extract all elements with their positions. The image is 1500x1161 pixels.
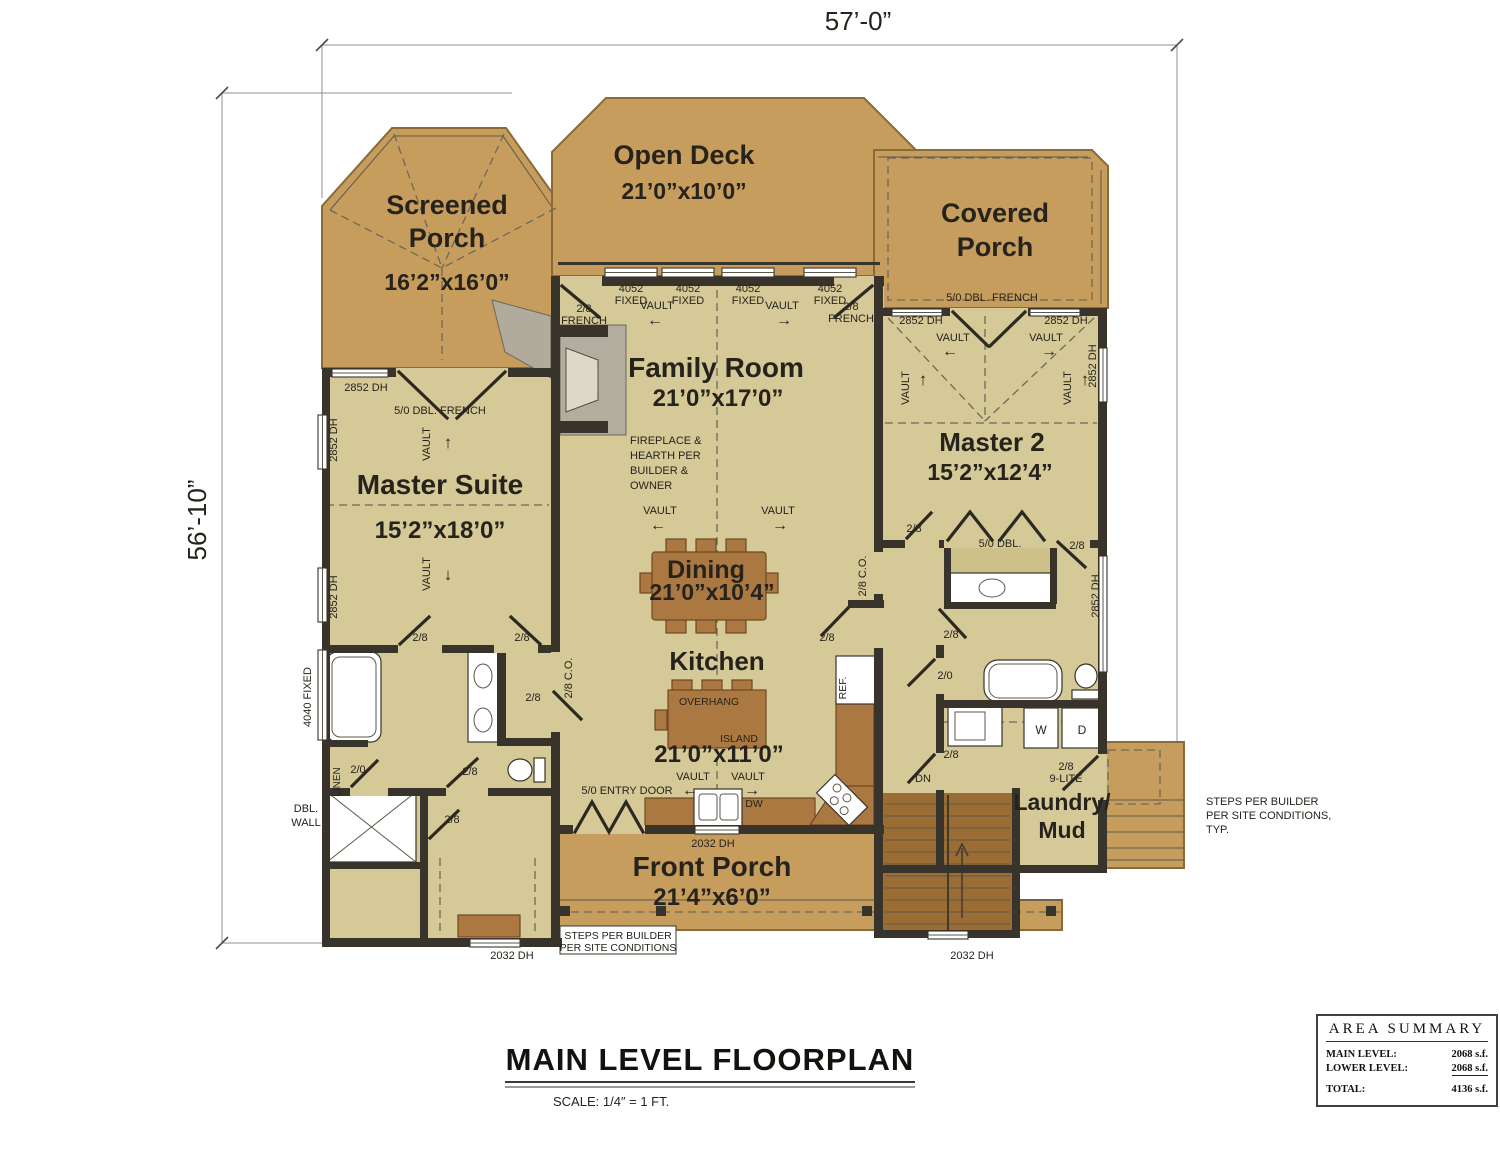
label-dw: DW — [745, 798, 763, 810]
label-window-4052-2: 4052FIXED — [672, 283, 704, 307]
area-summary-title: AREA SUMMARY — [1326, 1021, 1488, 1042]
room-family-dims: 21’0”x17’0” — [653, 385, 784, 412]
closet-shelf — [458, 915, 520, 937]
title-block: MAIN LEVEL FLOORPLAN SCALE: 1/4″ = 1 FT. — [505, 1042, 915, 1109]
area-summary-label: MAIN LEVEL: — [1326, 1048, 1397, 1062]
dim-left: 56’-10” — [182, 480, 212, 561]
label-door-50dbl-ms: 5/0 DBL. FRENCH — [394, 405, 486, 417]
label-door-28-ref: 2/8 — [819, 632, 834, 644]
note-steps-porch: STEPS PER BUILDERPER SITE CONDITIONS — [560, 930, 677, 954]
tub-left — [327, 652, 381, 742]
label-co-east: 2/8 C.O. — [857, 556, 869, 597]
label-door-20-linen: 2/0 — [350, 764, 365, 776]
label-window-2852-cp2: 2852 DH — [1044, 315, 1087, 327]
room-master2: Master 2 — [939, 427, 1045, 457]
stairs — [883, 793, 1012, 933]
shower — [327, 792, 416, 862]
room-front-porch-dims: 21’4”x6’0” — [653, 884, 770, 911]
note-steps-side: STEPS PER BUILDERPER SITE CONDITIONS,TYP… — [1206, 796, 1331, 836]
kitchen-sink — [694, 789, 742, 829]
label-window-2032-kitchen: 2032 DH — [691, 838, 734, 850]
toilet-left — [508, 759, 532, 781]
label-vault-ms-n: VAULT — [421, 427, 433, 461]
label-window-2852-w1: 2852 DH — [328, 418, 340, 461]
label-window-2032-sw: 2032 DH — [490, 950, 533, 962]
label-door-50dbl-m2: 5/0 DBL. — [979, 538, 1022, 550]
area-summary: AREA SUMMARY MAIN LEVEL: 2068 s.f. LOWER… — [1316, 1014, 1498, 1107]
area-summary-value: 2068 s.f. — [1452, 1062, 1488, 1077]
label-window-4040: 4040 FIXED — [302, 667, 314, 727]
label-door-50dbl-cp: 5/0 DBL. FRENCH — [946, 292, 1038, 304]
area-summary-value: 4136 s.f. — [1452, 1083, 1488, 1097]
covered-porch-deck — [874, 150, 1108, 308]
arrow-vault-kitchen-w: ← — [682, 782, 698, 799]
tub-right — [984, 660, 1062, 702]
area-summary-row-main: MAIN LEVEL: 2068 s.f. — [1326, 1048, 1488, 1062]
arrow-vault-m2-w: ← — [942, 343, 958, 360]
label-door-28-m2w: 2/8 — [906, 523, 921, 535]
arrow-vault-fam-nw: ← — [647, 312, 663, 329]
label-vault-fam-sw: VAULT — [643, 505, 677, 517]
room-master2-dims: 15’2”x12’4” — [927, 459, 1052, 485]
kitchen-counter-east — [836, 700, 874, 786]
room-dining-dims: 21’0”x10’4” — [649, 579, 774, 605]
label-window-2852-cp1: 2852 DH — [899, 315, 942, 327]
room-family: Family Room — [628, 352, 804, 383]
room-master-suite-dims: 15’2”x18’0” — [375, 517, 506, 544]
area-summary-value: 2068 s.f. — [1452, 1048, 1488, 1062]
label-dryer: D — [1078, 723, 1087, 737]
dim-top: 57’-0” — [825, 6, 891, 36]
label-window-2852-ms: 2852 DH — [344, 382, 387, 394]
label-door-28-laundry: 2/8 — [943, 749, 958, 761]
room-kitchen: Kitchen — [669, 646, 764, 676]
side-steps — [1100, 742, 1184, 868]
arrow-vault-m2-sw: ↑ — [919, 370, 928, 389]
label-vault-m2-se: VAULT — [1062, 371, 1074, 405]
room-open-deck-dims: 21’0”x10’0” — [621, 178, 746, 204]
label-door-28-m2e: 2/8 — [1069, 540, 1084, 552]
label-door-28-hall-e: 2/8 — [943, 629, 958, 641]
arrow-vault-ms-n: ↑ — [444, 433, 453, 452]
label-door-28-wc: 2/8 — [462, 766, 477, 778]
label-door-28-ms1: 2/8 — [412, 632, 427, 644]
area-summary-label: LOWER LEVEL: — [1326, 1062, 1408, 1077]
label-window-2852-e2: 2852 DH — [1090, 574, 1102, 617]
label-linen: LINEN — [332, 767, 343, 796]
room-open-deck: Open Deck — [613, 140, 755, 170]
label-vault-m2-sw: VAULT — [900, 371, 912, 405]
floorplan-canvas: 57’-0”56’-10”ScreenedPorch16’2”x16’0”Ope… — [0, 0, 1500, 1161]
vanity-right — [948, 573, 1056, 603]
label-vault-fam-nw: VAULT — [640, 300, 674, 312]
label-washer: W — [1035, 723, 1047, 737]
area-summary-label: TOTAL: — [1326, 1083, 1365, 1097]
arrow-vault-fam-se: → — [772, 517, 788, 534]
room-front-porch: Front Porch — [633, 851, 792, 882]
label-door-28-shower: 2/8 — [444, 814, 459, 826]
note-dbl-wall: DBL.WALL — [291, 803, 321, 829]
room-screened-porch-dims: 16’2”x16’0” — [384, 269, 509, 295]
area-summary-row-lower: LOWER LEVEL: 2068 s.f. — [1326, 1062, 1488, 1077]
label-island: ISLAND — [720, 733, 758, 745]
page-title: MAIN LEVEL FLOORPLAN — [505, 1042, 915, 1078]
floorplan-drawing: 57’-0”56’-10”ScreenedPorch16’2”x16’0”Ope… — [0, 0, 1500, 1161]
label-vault-fam-ne: VAULT — [765, 300, 799, 312]
arrow-vault-kitchen-e: → — [744, 782, 760, 799]
label-door-20-bath: 2/0 — [937, 670, 952, 682]
room-master-suite: Master Suite — [357, 469, 524, 500]
label-overhang: OVERHANG — [679, 696, 739, 708]
title-underline — [505, 1081, 915, 1088]
fireplace — [554, 325, 626, 435]
label-door-28-hall-w: 2/8 — [525, 692, 540, 704]
room-kitchen-dims: 21’0”x11’0” — [654, 741, 783, 768]
arrow-vault-fam-ne: → — [776, 312, 792, 329]
label-window-4052-4: 4052FIXED — [814, 283, 846, 307]
label-ref: REF. — [837, 677, 849, 700]
label-door-28-ms2: 2/8 — [514, 632, 529, 644]
area-summary-row-total: TOTAL: 4136 s.f. — [1326, 1083, 1488, 1097]
scale-note: SCALE: 1/4″ = 1 FT. — [505, 1094, 915, 1109]
label-entry-door: 5/0 ENTRY DOOR — [581, 785, 672, 797]
label-vault-fam-se: VAULT — [761, 505, 795, 517]
label-window-2852-w2: 2852 DH — [328, 575, 340, 618]
label-window-4052-3: 4052FIXED — [732, 283, 764, 307]
toilet-right — [1075, 664, 1097, 688]
arrow-vault-fam-sw: ← — [650, 517, 666, 534]
label-vault-ms-s: VAULT — [421, 557, 433, 591]
label-co-west: 2/8 C.O. — [563, 658, 575, 699]
arrow-vault-m2-e: → — [1041, 343, 1057, 360]
label-dn: DN — [915, 773, 931, 785]
label-window-2852-e1: 2852 DH — [1087, 344, 1099, 387]
label-window-2032-stairs: 2032 DH — [950, 950, 993, 962]
arrow-vault-ms-s: ↓ — [444, 565, 453, 584]
